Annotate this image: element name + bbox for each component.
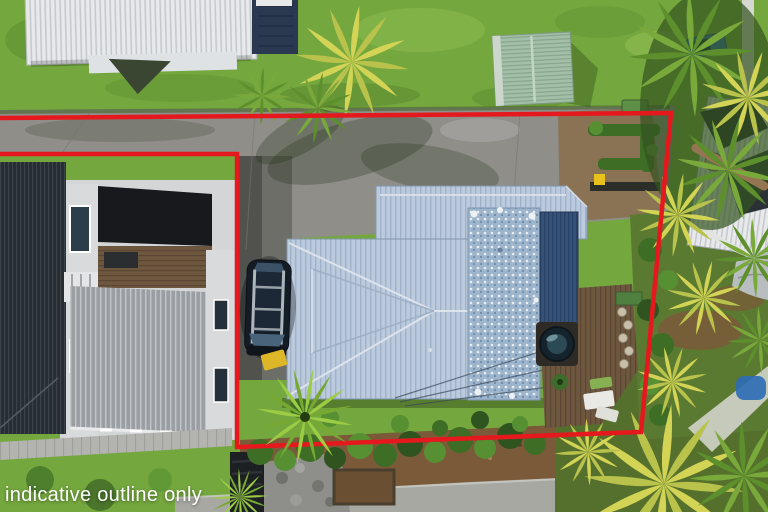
neighbour-house-left <box>0 162 235 440</box>
blue-tarp <box>736 376 766 400</box>
grey-gable-roof <box>70 286 206 434</box>
watermark-label: indicative outline only <box>5 484 202 507</box>
window <box>70 206 90 252</box>
navy-roof-section <box>540 212 578 330</box>
aerial-property-photo: indicative outline only <box>0 0 768 512</box>
left-hip-section <box>287 239 470 399</box>
navy-deck-structure <box>252 0 298 54</box>
flat-roof <box>98 186 212 246</box>
timber-retaining <box>334 470 394 504</box>
window <box>214 368 228 402</box>
rear-window <box>253 263 285 273</box>
yellow-box <box>594 174 605 185</box>
window <box>214 300 228 330</box>
suv-car <box>238 255 298 361</box>
planter-box <box>616 292 642 305</box>
photo-canvas <box>0 0 768 512</box>
